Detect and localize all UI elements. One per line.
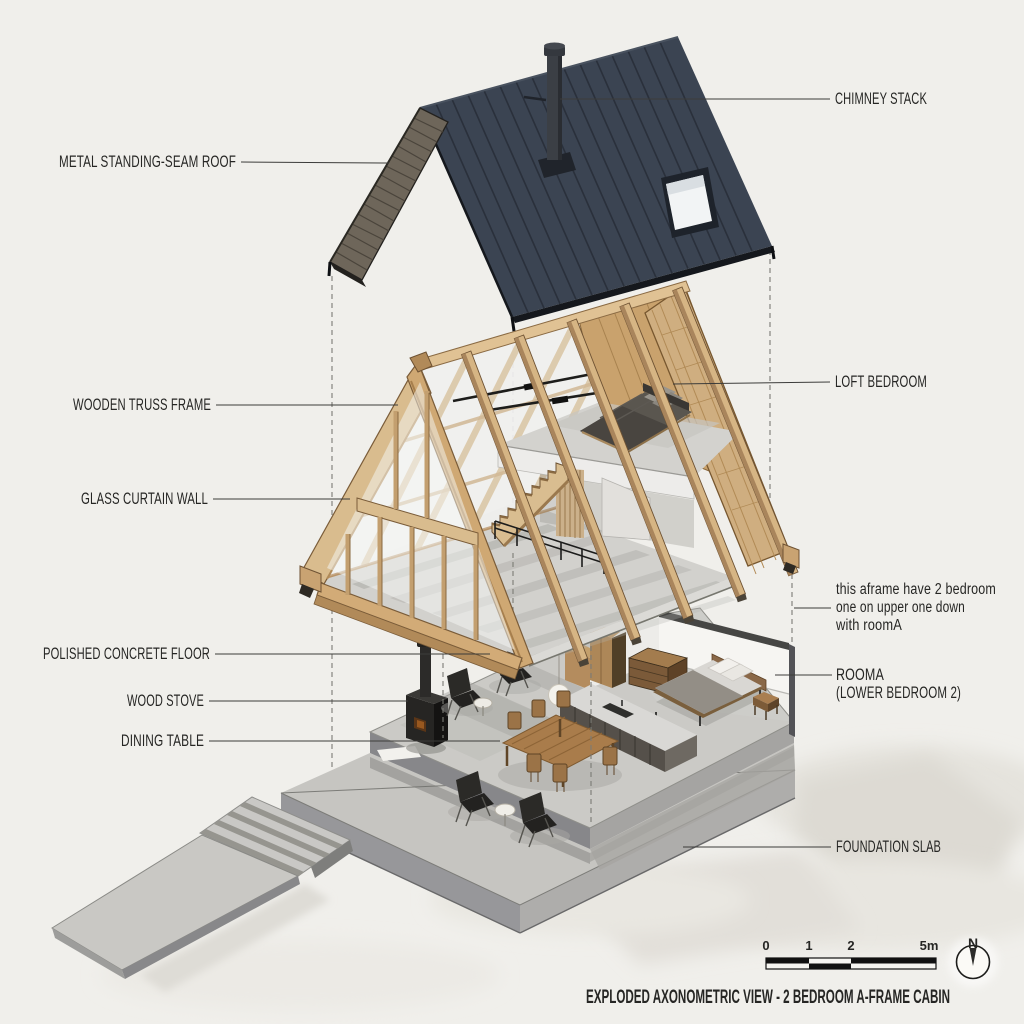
svg-text:FOUNDATION SLAB: FOUNDATION SLAB [836,837,941,856]
svg-text:METAL STANDING-SEAM ROOF: METAL STANDING-SEAM ROOF [59,152,236,171]
svg-text:this aframe have 2 bedroom: this aframe have 2 bedroom [836,581,996,598]
svg-text:with roomA: with roomA [835,617,902,634]
svg-text:GLASS CURTAIN WALL: GLASS CURTAIN WALL [81,489,208,508]
svg-text:(LOWER BEDROOM 2): (LOWER BEDROOM 2) [836,683,961,702]
svg-text:POLISHED CONCRETE FLOOR: POLISHED CONCRETE FLOOR [43,644,210,663]
svg-text:LOFT BEDROOM: LOFT BEDROOM [835,372,927,391]
svg-text:ROOMA: ROOMA [836,665,884,684]
svg-text:WOODEN TRUSS FRAME: WOODEN TRUSS FRAME [73,395,211,414]
svg-text:CHIMNEY STACK: CHIMNEY STACK [835,89,927,108]
svg-text:WOOD STOVE: WOOD STOVE [127,691,204,710]
svg-text:DINING TABLE: DINING TABLE [121,731,204,750]
svg-text:5m: 5m [920,938,939,953]
svg-text:0: 0 [762,938,769,953]
svg-text:one on upper one down: one on upper one down [836,599,965,616]
svg-text:2: 2 [847,938,854,953]
svg-text:1: 1 [805,938,812,953]
svg-text:EXPLODED AXONOMETRIC VIEW - 2: EXPLODED AXONOMETRIC VIEW - 2 BEDROOM A-… [586,987,950,1008]
